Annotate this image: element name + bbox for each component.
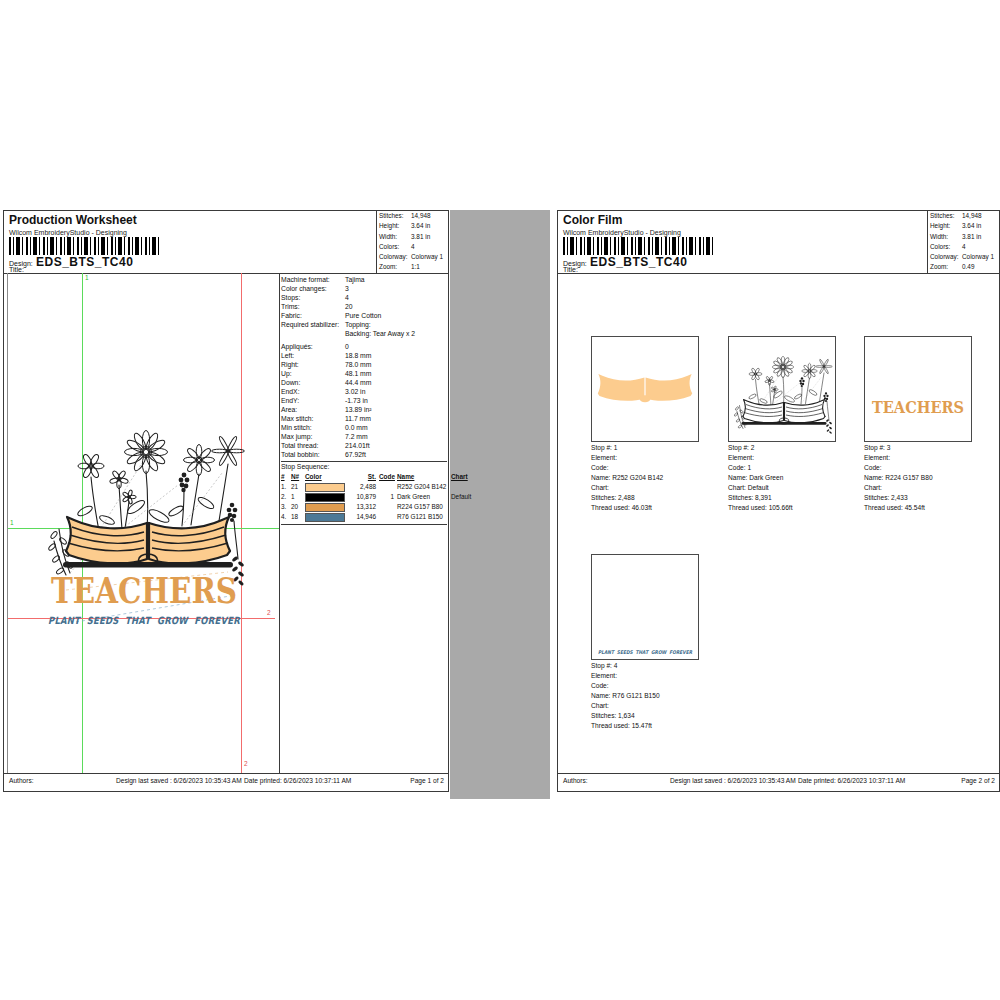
film-stop2-lineart — [729, 337, 835, 441]
thread-color-swatch — [305, 483, 345, 492]
page-number: Page 2 of 2 — [961, 777, 995, 784]
stop-sequence-row: 3. 20 13,312 R224 G157 B80 — [281, 502, 447, 512]
page-footer: Authors: Design last saved : 6/26/2023 1… — [4, 773, 448, 791]
film-stop3-teachers-art: TEACHERS — [865, 337, 971, 441]
design-details-panel: Machine format:Tajima Color changes:3 St… — [281, 275, 447, 459]
stop-sequence-row: 4. 18 14,946 R76 G121 B150 — [281, 512, 447, 522]
page-title: Color Film — [563, 213, 622, 227]
title-label: Title: — [563, 266, 578, 273]
film-thumbnail-stop2 — [728, 336, 836, 442]
detail-row: Right:78.0 mm — [281, 360, 447, 369]
date-printed: Date printed: 6/26/2023 10:37:11 AM — [244, 777, 351, 784]
info-row: Stitches:14,948 — [928, 211, 999, 221]
page-number: Page 1 of 2 — [410, 777, 444, 784]
title-label: Title: — [9, 266, 24, 273]
detail-row: EndY:-1.73 in — [281, 396, 447, 405]
detail-row: EndX:3.02 in — [281, 387, 447, 396]
stop-sequence-heading: Stop Sequence: — [281, 462, 447, 472]
thread-color-swatch — [305, 493, 345, 502]
design-preview-area: 1 1 2 2 TEACHERS PLANT SEEDS THAT GROW F… — [7, 273, 280, 773]
design-info-box: Stitches:14,948 Height:3.64 in Width:3.8… — [376, 211, 448, 273]
detail-row: Down:44.4 mm — [281, 378, 447, 387]
subtitle-lettering: PLANT SEEDS THAT GROW FOREVER — [48, 615, 241, 626]
barcode — [9, 237, 159, 255]
embroidery-design-artwork: TEACHERS PLANT SEEDS THAT GROW FOREVER — [36, 423, 252, 633]
detail-row: Max jump:7.2 mm — [281, 432, 447, 441]
detail-row: Min stitch:0.0 mm — [281, 423, 447, 432]
detail-row: Backing: Tear Away x 2 — [281, 329, 447, 338]
detail-row: Total thread:214.01ft — [281, 441, 447, 450]
svg-text:PLANT SEEDS THAT GROW FOREVER: PLANT SEEDS THAT GROW FOREVER — [598, 649, 693, 655]
authors-label: Authors: — [9, 777, 34, 784]
film-stop1-book-fill-art — [592, 337, 698, 441]
date-printed: Date printed: 6/26/2023 10:37:11 AM — [798, 777, 905, 784]
production-worksheet-page: Production Worksheet Wilcom EmbroiderySt… — [3, 210, 449, 792]
detail-row: Max stitch:11.7 mm — [281, 414, 447, 423]
page-header: Production Worksheet Wilcom EmbroiderySt… — [4, 211, 448, 274]
film-caption-stop2: Stop #: 2 Element: Code: 1 Name: Dark Gr… — [728, 443, 858, 513]
design-info-box: Stitches:14,948 Height:3.64 in Width:3.8… — [927, 211, 999, 273]
info-row: Width:3.81 in — [377, 232, 448, 242]
detail-row: Machine format:Tajima — [281, 275, 447, 284]
design-last-saved: Design last saved : 6/26/2023 10:35:43 A… — [670, 777, 796, 784]
teachers-lettering: TEACHERS — [51, 570, 237, 611]
page-gap-background — [450, 210, 550, 799]
info-row: Width:3.81 in — [928, 232, 999, 242]
authors-label: Authors: — [563, 777, 588, 784]
stop-sequence-section: Stop Sequence: # N# Color St. Code Name … — [281, 461, 447, 525]
guide-marker: 1 — [85, 275, 89, 282]
detail-row: Total bobbin:67.92ft — [281, 450, 447, 459]
info-row: Colors:4 — [928, 242, 999, 252]
info-row: Height:3.64 in — [377, 221, 448, 231]
info-row: Colors:4 — [377, 242, 448, 252]
info-row: Colorway:Colorway 1 — [377, 252, 448, 262]
stop-sequence-row: 1. 21 2,488 R252 G204 B142 — [281, 482, 447, 492]
stop-sequence-header-row: # N# Color St. Code Name Chart — [281, 472, 447, 482]
detail-row: Fabric:Pure Cotton — [281, 311, 447, 320]
detail-row: Up:48.1 mm — [281, 369, 447, 378]
detail-row: Required stabilizer:Topping: — [281, 320, 447, 329]
print-preview-canvas: Production Worksheet Wilcom EmbroiderySt… — [0, 0, 1000, 1000]
barcode — [563, 237, 713, 255]
film-thumbnail-stop3: TEACHERS — [864, 336, 972, 442]
info-row: Zoom:1:1 — [377, 262, 448, 272]
detail-row: Area:13.89 in² — [281, 405, 447, 414]
design-code: EDS_BTS_TC40 — [36, 255, 133, 269]
thread-color-swatch — [305, 513, 345, 522]
guide-marker: 1 — [10, 520, 14, 527]
guide-marker: 2 — [244, 761, 248, 768]
detail-row: Left:18.8 mm — [281, 351, 447, 360]
app-name: Wilcom EmbroideryStudio - Designing — [563, 229, 681, 236]
app-name: Wilcom EmbroideryStudio - Designing — [9, 229, 127, 236]
film-stop4-subtitle-art: PLANT SEEDS THAT GROW FOREVER — [592, 555, 698, 659]
info-row: Stitches:14,948 — [377, 211, 448, 221]
detail-row: Color changes:3 — [281, 284, 447, 293]
design-last-saved: Design last saved : 6/26/2023 10:35:43 A… — [116, 777, 242, 784]
film-caption-stop3: Stop #: 3 Element: Code: Name: R224 G157… — [864, 443, 994, 513]
detail-row: Stops:4 — [281, 293, 447, 302]
color-film-page: Color Film Wilcom EmbroideryStudio - Des… — [557, 210, 1000, 792]
info-row: Height:3.64 in — [928, 221, 999, 231]
design-code: EDS_BTS_TC40 — [590, 255, 687, 269]
svg-text:TEACHERS: TEACHERS — [872, 397, 964, 417]
detail-row: Trims:20 — [281, 302, 447, 311]
page-header: Color Film Wilcom EmbroideryStudio - Des… — [558, 211, 999, 274]
stop-sequence-row: 2. 1 10,879 1 Dark Green Default — [281, 492, 447, 502]
page-title: Production Worksheet — [9, 213, 137, 227]
guide-marker: 2 — [267, 610, 271, 617]
film-thumbnail-stop1 — [591, 336, 699, 442]
detail-row: Appliqués:0 — [281, 342, 447, 351]
film-caption-stop1: Stop #: 1 Element: Code: Name: R252 G204… — [591, 443, 721, 513]
thread-color-swatch — [305, 503, 345, 512]
info-row: Zoom:0.49 — [928, 262, 999, 272]
page-footer: Authors: Design last saved : 6/26/2023 1… — [558, 773, 999, 791]
film-thumbnail-stop4: PLANT SEEDS THAT GROW FOREVER — [591, 554, 699, 660]
info-row: Colorway:Colorway 1 — [928, 252, 999, 262]
film-caption-stop4: Stop #: 4 Element: Code: Name: R76 G121 … — [591, 661, 721, 731]
